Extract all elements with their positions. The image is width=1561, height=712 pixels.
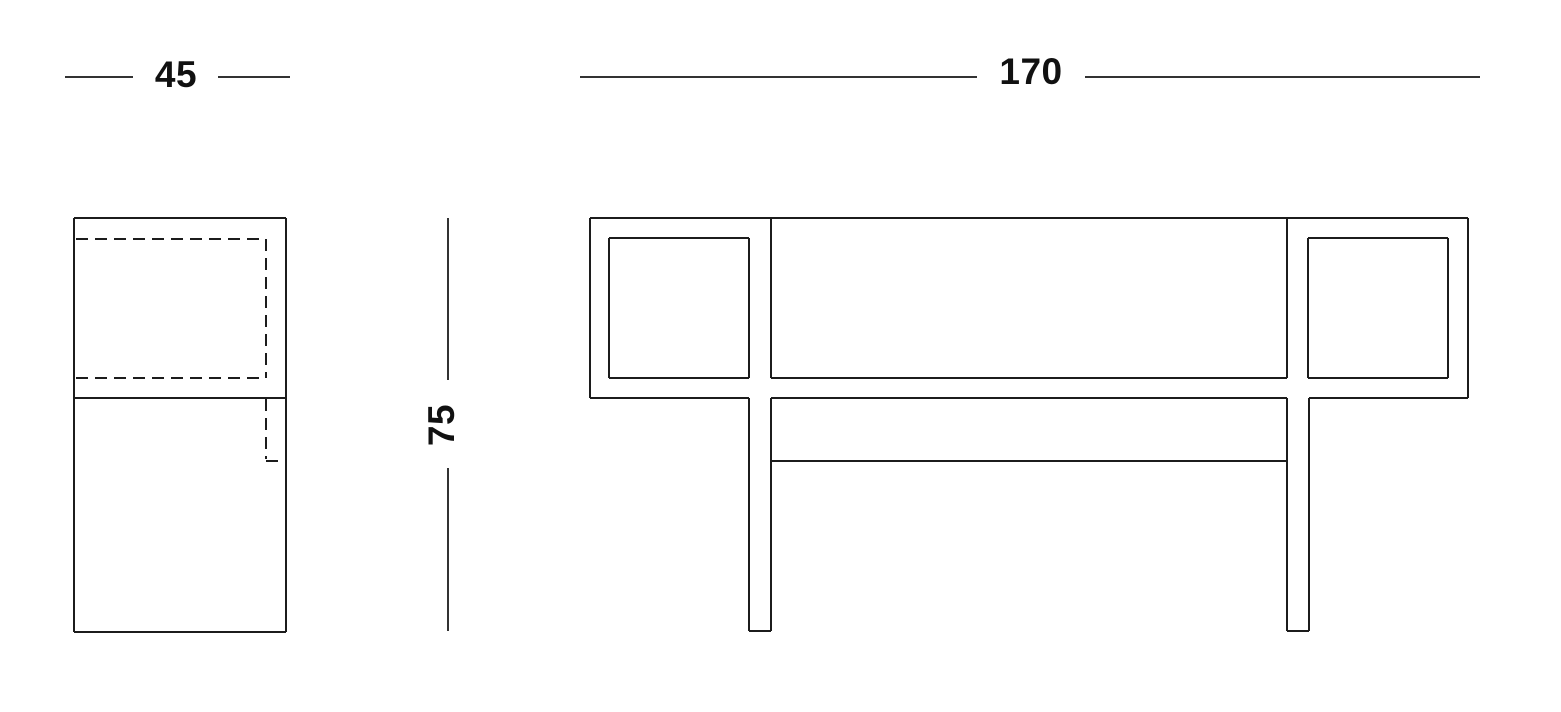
furniture-dimension-drawing xyxy=(0,0,1561,712)
side-view-hidden-lines xyxy=(76,239,286,461)
length-dimension-label: 170 xyxy=(961,52,1101,92)
front-view-outline xyxy=(590,218,1468,631)
side-view-outline xyxy=(74,218,286,632)
height-dimension-label: 75 xyxy=(422,355,462,495)
depth-dimension-label: 45 xyxy=(106,55,246,95)
technical-drawing-page: 45 170 75 xyxy=(0,0,1561,712)
